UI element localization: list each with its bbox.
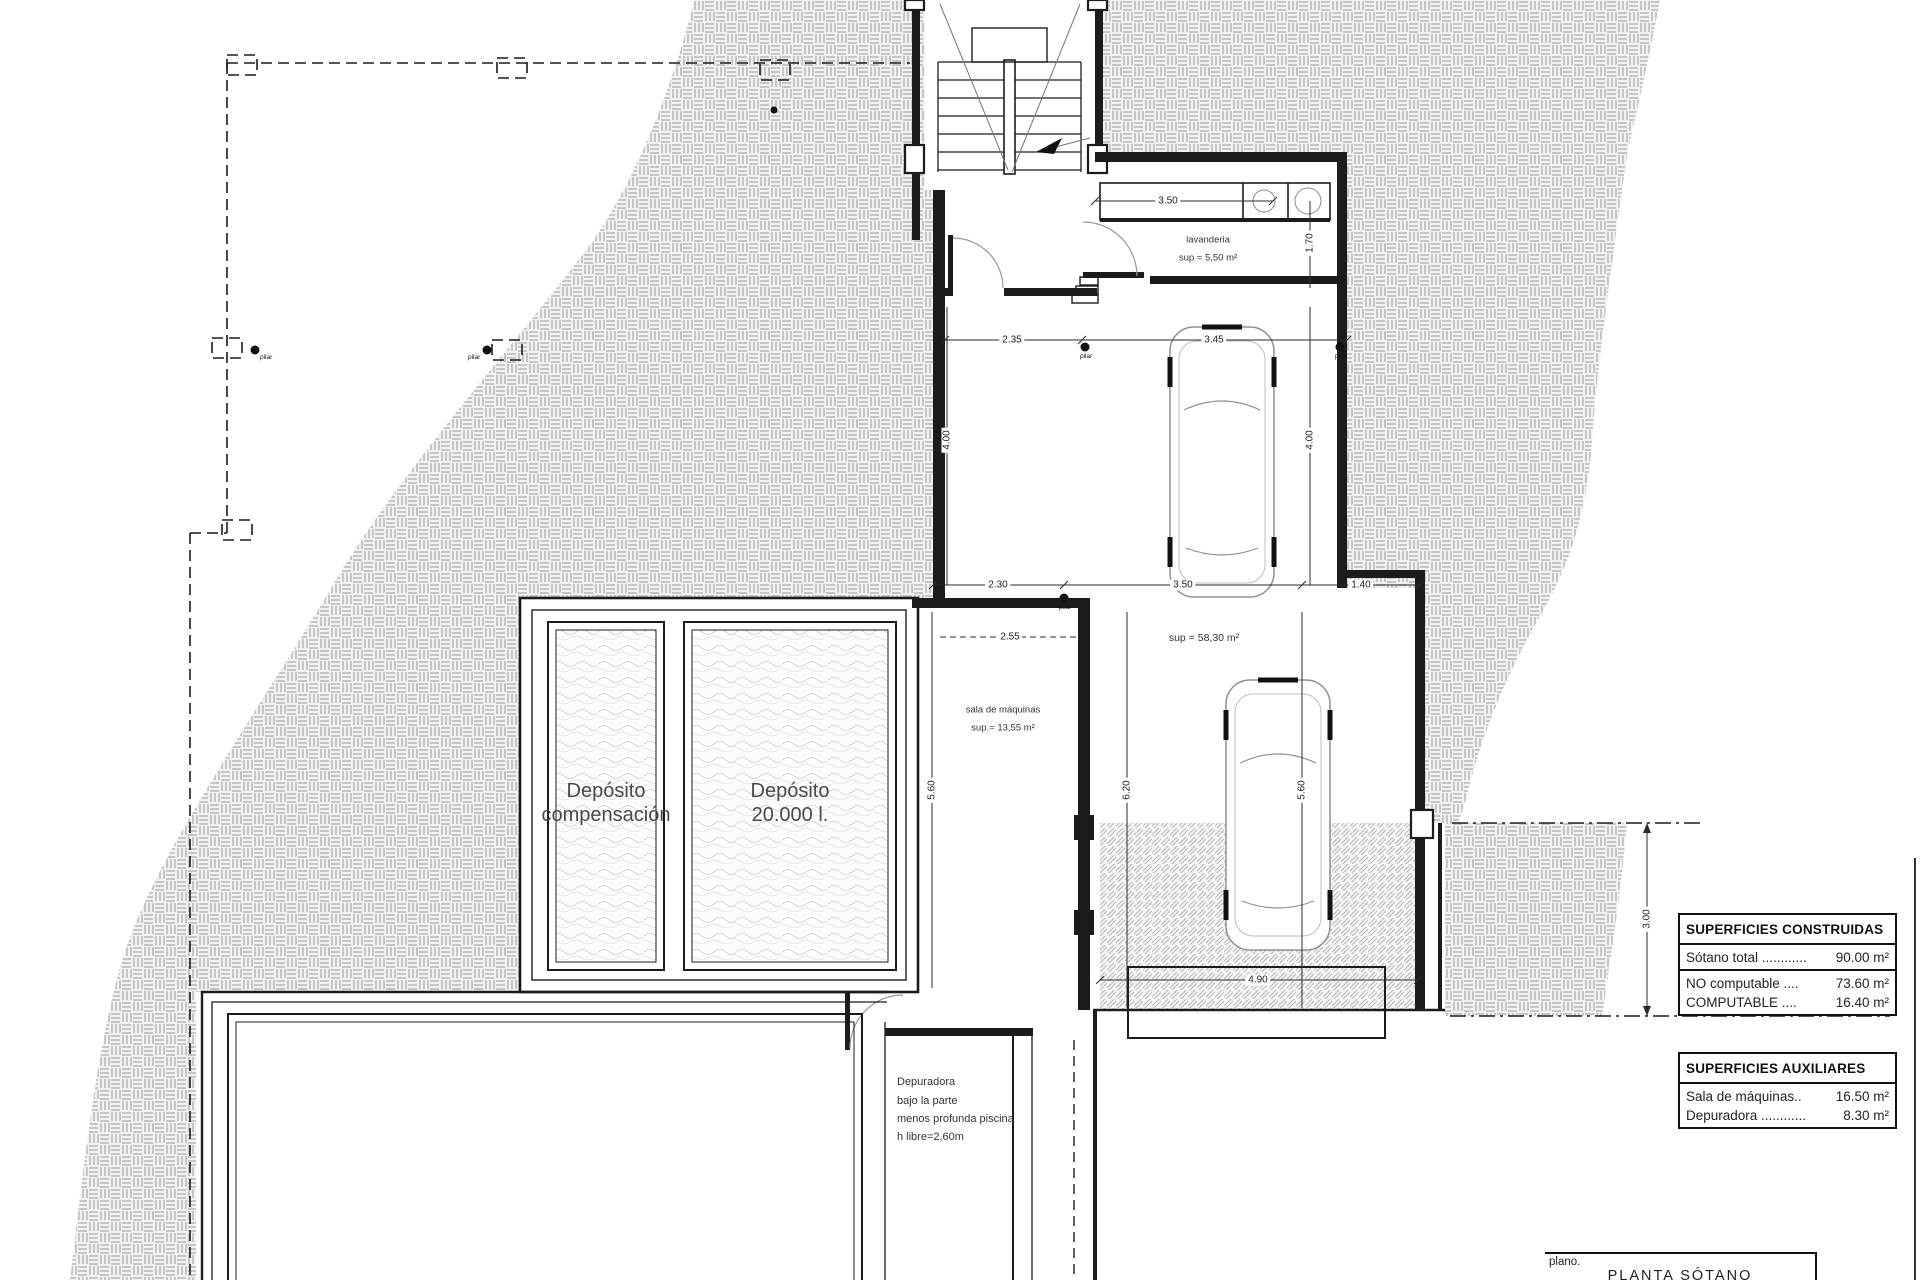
tank-20000-line1: Depósito (751, 780, 830, 804)
table-row: Sótano total ............ 90.00 m² (1680, 945, 1895, 969)
table-row: Sala de máquinas.. 16.50 m² (1680, 1084, 1895, 1108)
garage-area: sup = 58,30 m² (1169, 632, 1239, 644)
pilar-marker-label: pilar (1059, 604, 1071, 611)
machine-room-name: sala de máquinas (966, 705, 1040, 716)
depuradora-note-line3: menos profunda piscina (897, 1113, 1014, 1125)
title-block: plano. PLANTA SÓTANO (1545, 1252, 1817, 1280)
table-row: COMPUTABLE .... 16.40 m² (1680, 995, 1895, 1014)
plan-name: PLANTA SÓTANO (1545, 1268, 1815, 1280)
depuradora-note-line4: h libre=2,60m (897, 1131, 964, 1143)
row-value: 8.30 m² (1843, 1108, 1889, 1123)
tank-compensation-label: Depósito compensación (542, 780, 671, 827)
tank-compensation-line1: Depósito (542, 780, 671, 804)
stair-treads (938, 62, 1081, 172)
dim-garage-top-right: 3.45 (1201, 335, 1226, 346)
row-value: 73.60 m² (1836, 976, 1889, 991)
dim-ramp-width: 4.90 (1245, 975, 1270, 986)
table-row: NO computable .... 73.60 m² (1680, 971, 1895, 995)
row-value: 16.50 m² (1836, 1089, 1889, 1104)
pilar-marker-label: pilar (1080, 353, 1092, 360)
sheet-border (1914, 858, 1916, 1280)
row-value: 16.40 m² (1836, 995, 1889, 1010)
row-label: NO computable .... (1686, 976, 1799, 991)
floor-plan-canvas (0, 0, 1920, 1280)
row-label: Depuradora ............ (1686, 1108, 1806, 1123)
row-value: 90.00 m² (1836, 950, 1889, 965)
row-label: Sótano total ............ (1686, 950, 1807, 965)
laundry-sink-icon (1295, 188, 1321, 214)
row-label: COMPUTABLE .... (1686, 995, 1797, 1010)
laundry-room-area: sup = 5,50 m² (1179, 253, 1237, 264)
tank-20000-line2: 20.000 l. (751, 804, 830, 828)
dim-setback-depth: 3.00 (1642, 906, 1653, 931)
pilar-marker-label: pilar (260, 354, 272, 361)
table-title: SUPERFICIES AUXILIARES (1680, 1054, 1895, 1084)
dim-garage-top-left: 2.35 (999, 335, 1024, 346)
dim-laundry-width: 3.50 (1155, 196, 1180, 207)
basement-floor-plan: 3.50 1.70 2.35 3.45 4.00 4.00 2.30 3.50 … (0, 0, 1920, 1280)
pilar-marker-label: pilar (1335, 353, 1347, 360)
table-title: SUPERFICIES CONSTRUIDAS (1680, 915, 1895, 945)
depuradora-note-line1: Depuradora (897, 1076, 955, 1088)
dim-lower-right-height: 5.60 (1297, 777, 1308, 802)
car-icon (1170, 327, 1274, 597)
tank-20000-label: Depósito 20.000 l. (751, 780, 830, 827)
pilar-marker-label: pilar (468, 354, 480, 361)
tank-compensation-line2: compensación (542, 804, 671, 828)
superficies-construidas-table: SUPERFICIES CONSTRUIDAS Sótano total ...… (1678, 913, 1897, 1016)
laundry-room-name: lavanderia (1186, 235, 1230, 246)
dim-laundry-depth: 1.70 (1305, 230, 1316, 255)
dim-lower-left-height: 5.60 (927, 777, 938, 802)
dim-garage-left-height: 4.00 (942, 427, 953, 452)
row-label: Sala de máquinas.. (1686, 1089, 1802, 1104)
dim-machine-room-width: 2.55 (997, 632, 1022, 643)
dim-garage-right-height: 4.00 (1305, 427, 1316, 452)
dim-lower-center-height: 6.20 (1122, 777, 1133, 802)
dim-mid-right: 1.40 (1348, 580, 1373, 591)
depuradora-note-line2: bajo la parte (897, 1095, 958, 1107)
dim-mid-left: 2.30 (985, 580, 1010, 591)
machine-room-area: sup.= 13,55 m² (971, 723, 1035, 734)
plano-label: plano. (1549, 1256, 1580, 1268)
superficies-auxiliares-table: SUPERFICIES AUXILIARES Sala de máquinas.… (1678, 1052, 1897, 1129)
dim-mid-center: 3.50 (1170, 580, 1195, 591)
car-icon (1226, 680, 1330, 950)
table-row: Depuradora ............ 8.30 m² (1680, 1108, 1895, 1127)
